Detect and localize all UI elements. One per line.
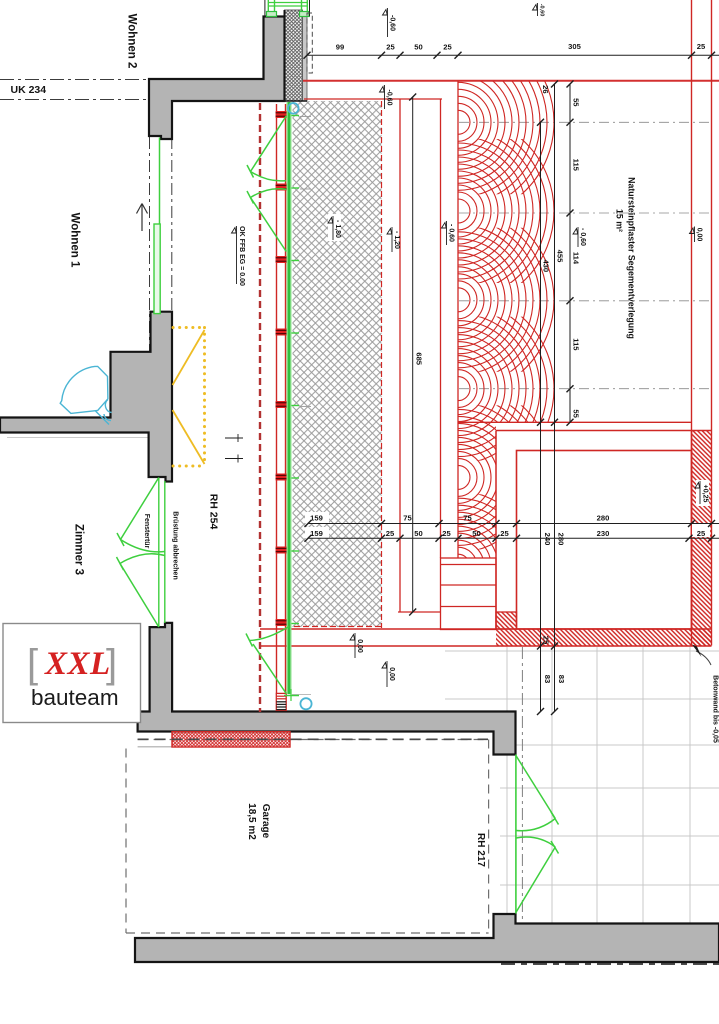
svg-text:25: 25 <box>442 529 451 538</box>
svg-text:55: 55 <box>572 98 581 107</box>
svg-text:-0,60: -0,60 <box>539 4 545 17</box>
svg-text:25: 25 <box>542 636 551 645</box>
svg-text:25: 25 <box>500 529 509 538</box>
svg-text:25: 25 <box>386 529 395 538</box>
svg-text:430: 430 <box>542 259 551 272</box>
svg-text:25: 25 <box>386 43 395 52</box>
svg-text:Wohnen 2: Wohnen 2 <box>126 14 138 69</box>
svg-text:75: 75 <box>463 514 472 523</box>
svg-text:+0,25: +0,25 <box>702 485 709 503</box>
svg-text:159: 159 <box>310 529 323 538</box>
svg-text:RH 254: RH 254 <box>208 494 220 530</box>
svg-text:115: 115 <box>572 159 581 172</box>
svg-text:Betonwand bis -0,05: Betonwand bis -0,05 <box>712 675 719 743</box>
svg-text:280: 280 <box>557 533 566 546</box>
svg-text:Zimmer 3: Zimmer 3 <box>73 524 85 575</box>
svg-text:83: 83 <box>543 675 552 683</box>
svg-text:50: 50 <box>472 529 480 538</box>
svg-text:bauteam: bauteam <box>31 685 119 710</box>
svg-text:OK FFB EG = 0.00: OK FFB EG = 0.00 <box>238 226 245 286</box>
svg-text:0,00: 0,00 <box>696 228 703 242</box>
svg-text:26: 26 <box>541 85 550 93</box>
svg-text:Natursteinpflaster Segementver: Natursteinpflaster Segementverlegung <box>627 177 637 339</box>
svg-text:-0,60: -0,60 <box>386 90 393 106</box>
svg-text:0,00: 0,00 <box>356 639 363 653</box>
svg-text:25: 25 <box>443 43 452 52</box>
svg-text:Fenstertür: Fenstertür <box>143 514 150 549</box>
svg-text:- 1,80: - 1,80 <box>334 220 341 238</box>
svg-text:159: 159 <box>310 514 323 523</box>
svg-text:Garage: Garage <box>260 804 271 839</box>
svg-text:455: 455 <box>556 250 565 263</box>
svg-text:Brüstung abbrechen: Brüstung abbrechen <box>172 511 179 579</box>
svg-text:0,00: 0,00 <box>388 667 395 681</box>
svg-text:- 1,20: - 1,20 <box>393 231 400 249</box>
svg-text:Wohnen 1: Wohnen 1 <box>69 213 81 268</box>
svg-text:230: 230 <box>597 529 610 538</box>
svg-text:55: 55 <box>572 409 581 418</box>
svg-text:75: 75 <box>403 514 412 523</box>
svg-text:280: 280 <box>597 514 610 523</box>
svg-text:RH 217: RH 217 <box>475 833 486 867</box>
svg-text:- 0,60: - 0,60 <box>448 224 455 242</box>
svg-text:114: 114 <box>572 252 581 265</box>
svg-text:18,5 m2: 18,5 m2 <box>246 803 257 840</box>
svg-text:[: [ <box>27 642 38 686</box>
svg-text:XXL: XXL <box>44 646 111 682</box>
svg-text:305: 305 <box>568 42 581 51</box>
svg-text:240: 240 <box>543 533 552 546</box>
svg-text:685: 685 <box>415 352 424 365</box>
svg-text:83: 83 <box>557 675 566 683</box>
svg-text:25: 25 <box>697 42 706 51</box>
svg-text:115: 115 <box>572 338 581 351</box>
svg-text:50: 50 <box>414 529 422 538</box>
svg-text:]: ] <box>106 642 117 686</box>
svg-text:25: 25 <box>697 529 706 538</box>
svg-text:99: 99 <box>336 43 344 52</box>
svg-text:50: 50 <box>414 43 422 52</box>
svg-text:15 m²: 15 m² <box>615 209 625 232</box>
svg-text:- 0,60: - 0,60 <box>579 228 586 246</box>
svg-text:UK 234: UK 234 <box>11 84 47 96</box>
svg-text:-0,60: -0,60 <box>389 15 396 31</box>
